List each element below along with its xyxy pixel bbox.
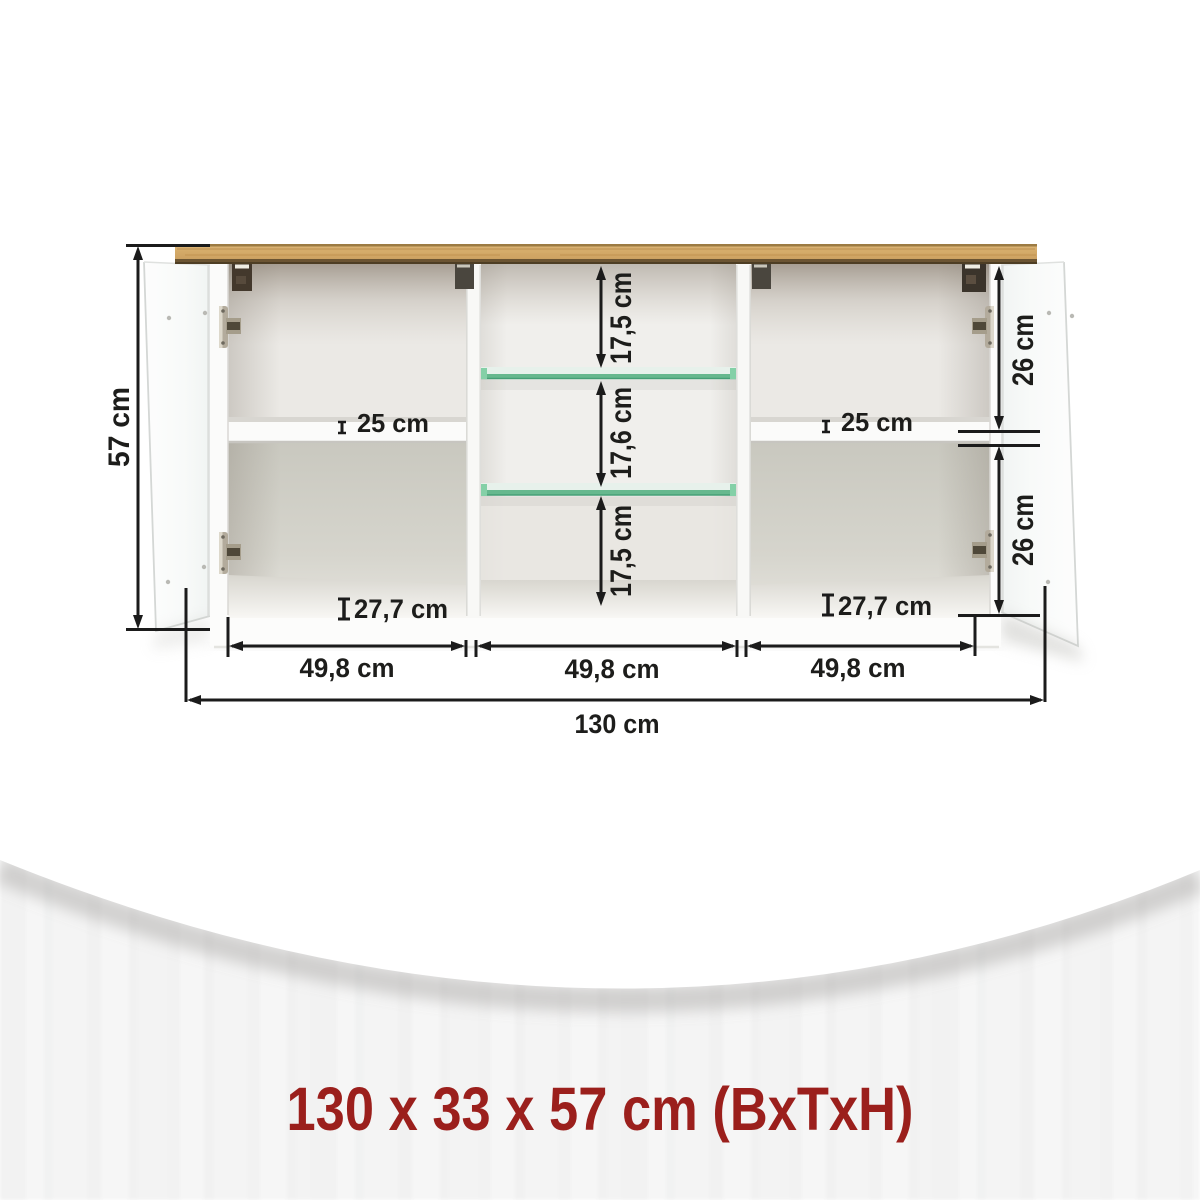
svg-text:26 cm: 26 cm (1007, 314, 1040, 386)
svg-text:25 cm: 25 cm (841, 407, 913, 437)
svg-text:17,6 cm: 17,6 cm (605, 387, 638, 479)
svg-text:130 cm: 130 cm (575, 709, 660, 739)
svg-text:49,8 cm: 49,8 cm (811, 653, 906, 683)
svg-text:26 cm: 26 cm (1007, 494, 1040, 566)
svg-text:17,5 cm: 17,5 cm (605, 505, 638, 597)
svg-text:27,7 cm: 27,7 cm (354, 594, 448, 624)
svg-text:49,8 cm: 49,8 cm (565, 654, 660, 684)
svg-text:17,5 cm: 17,5 cm (605, 272, 638, 364)
svg-text:25 cm: 25 cm (357, 408, 429, 438)
svg-text:57 cm: 57 cm (103, 387, 136, 467)
svg-text:49,8 cm: 49,8 cm (300, 653, 395, 683)
svg-text:27,7 cm: 27,7 cm (838, 591, 932, 621)
svg-text:130 x 33 x 57 cm (BxTxH): 130 x 33 x 57 cm (BxTxH) (287, 1075, 914, 1143)
